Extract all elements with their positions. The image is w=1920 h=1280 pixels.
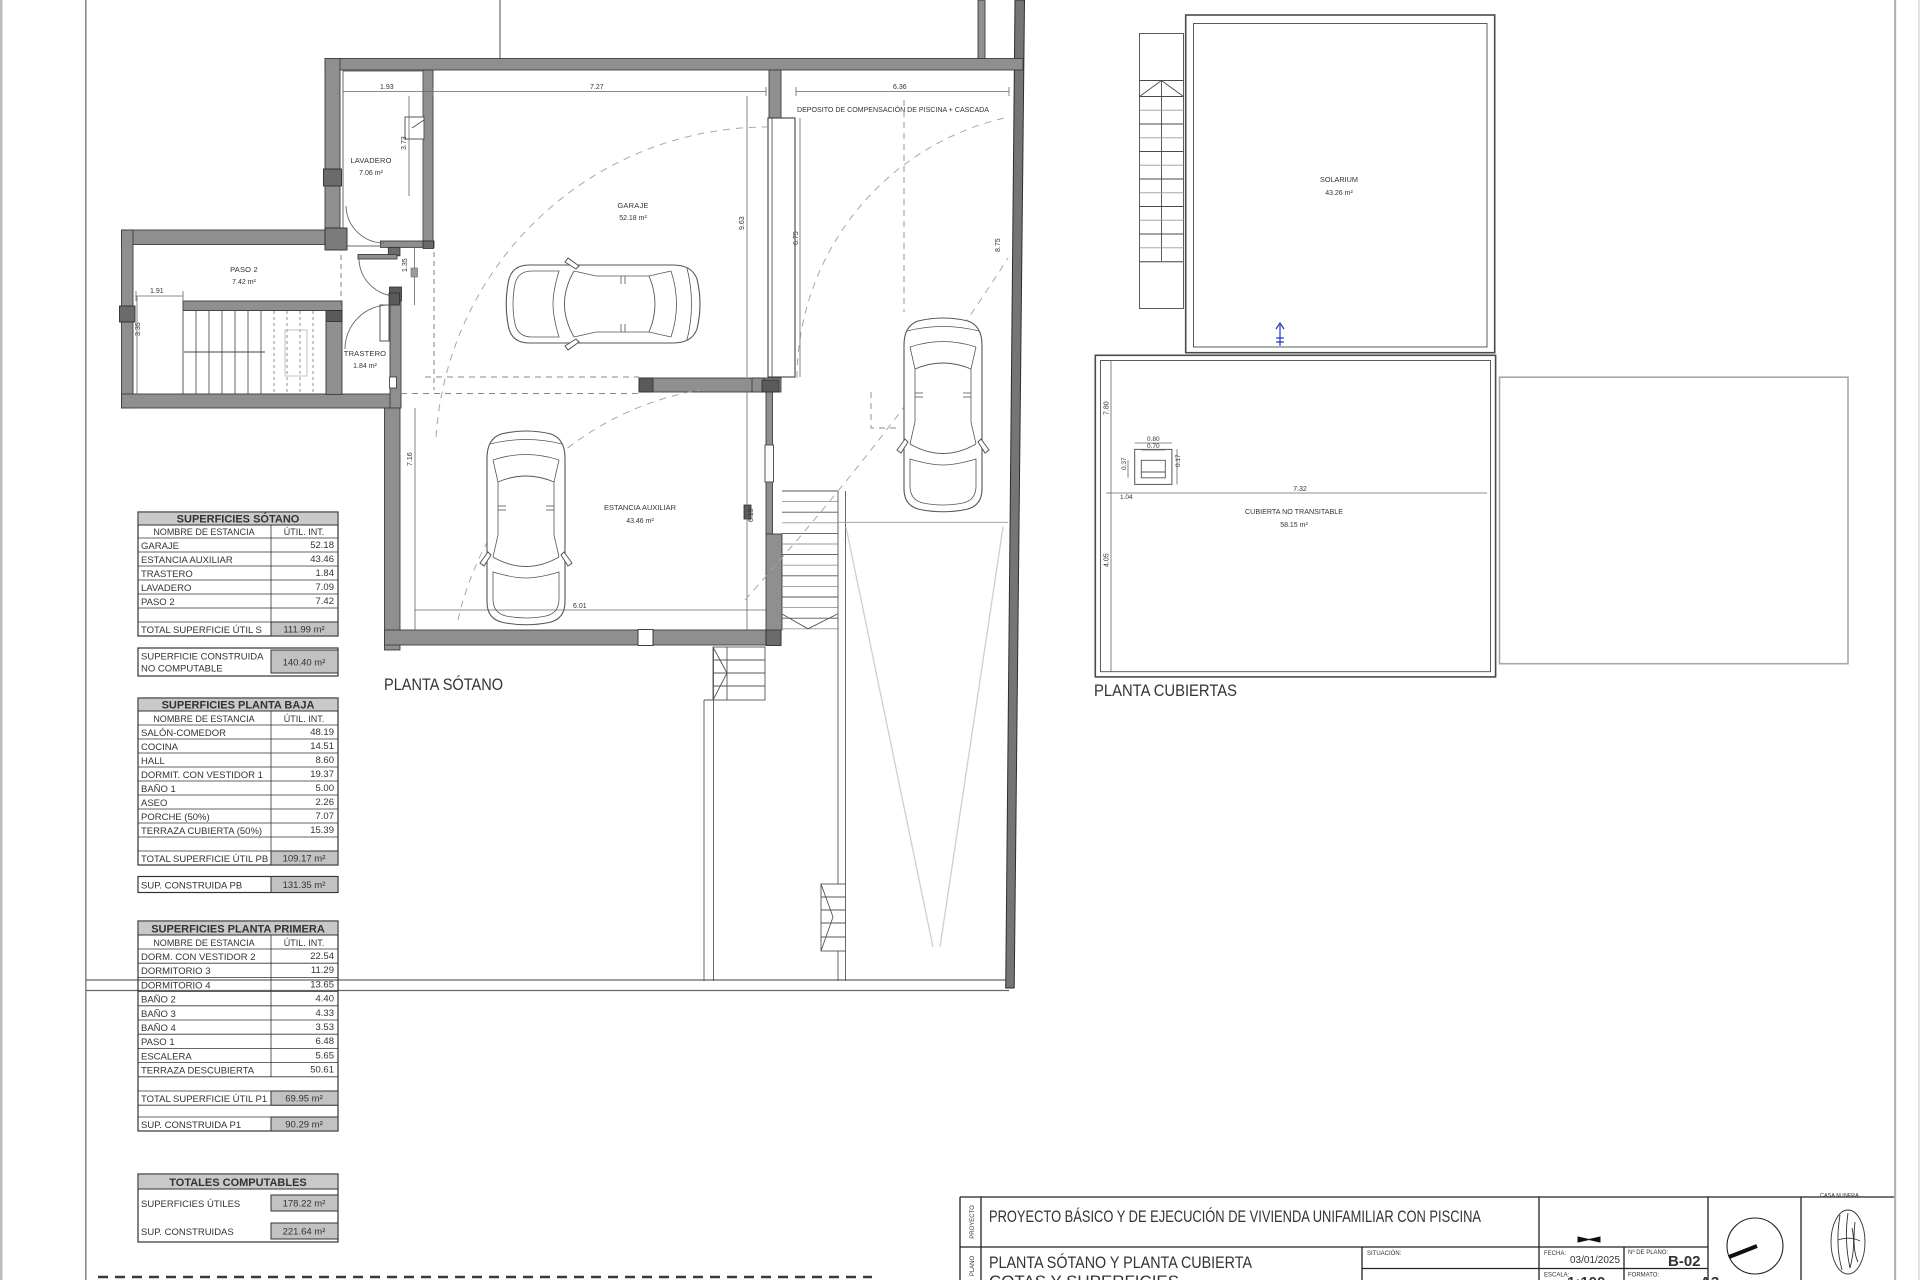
svg-text:4.40: 4.40 [316,994,335,1005]
svg-text:15.39: 15.39 [310,825,334,836]
svg-text:5.65: 5.65 [316,1050,335,1061]
svg-text:1.84: 1.84 [316,568,335,579]
svg-text:COCINA: COCINA [141,742,179,753]
svg-text:43.46: 43.46 [310,554,334,565]
svg-text:1.91: 1.91 [150,288,164,295]
svg-text:69.95 m²: 69.95 m² [285,1094,323,1105]
svg-text:BAÑO 2: BAÑO 2 [141,995,176,1006]
svg-text:03/01/2025: 03/01/2025 [1570,1255,1620,1266]
svg-text:43.26 m²: 43.26 m² [1325,190,1353,197]
svg-text:SUPERFICIES ÚTILES: SUPERFICIES ÚTILES [141,1199,240,1210]
svg-text:TOTAL SUPERFICIE ÚTIL P1: TOTAL SUPERFICIE ÚTIL P1 [141,1094,267,1105]
svg-text:GARAJE: GARAJE [141,541,179,552]
svg-text:ESTANCIA AUXILIAR: ESTANCIA AUXILIAR [141,555,233,566]
svg-text:PASO 2: PASO 2 [230,265,258,274]
svg-text:SUPERFICIES PLANTA BAJA: SUPERFICIES PLANTA BAJA [162,700,315,712]
svg-text:7.16: 7.16 [407,452,414,466]
svg-text:6.48: 6.48 [316,1036,335,1047]
svg-text:TOTALES COMPUTABLES: TOTALES COMPUTABLES [169,1177,307,1189]
svg-text:1.04: 1.04 [1120,494,1133,501]
svg-text:3.53: 3.53 [316,1022,335,1033]
svg-text:111.99 m²: 111.99 m² [283,625,324,636]
svg-text:TERRAZA DESCUBIERTA: TERRAZA DESCUBIERTA [141,1066,255,1077]
svg-text:1.93: 1.93 [380,84,394,91]
svg-text:22.54: 22.54 [310,951,334,962]
svg-text:DORM. CON VESTIDOR 2: DORM. CON VESTIDOR 2 [141,952,256,963]
svg-text:TOTAL SUPERFICIE ÚTIL S: TOTAL SUPERFICIE ÚTIL S [141,625,262,636]
svg-text:DEPOSITO DE COMPENSACIÓN DE PI: DEPOSITO DE COMPENSACIÓN DE PISCINA + CA… [797,105,989,114]
svg-text:SITUACIÓN:: SITUACIÓN: [1367,1250,1402,1257]
svg-text:58.15 m²: 58.15 m² [1280,522,1308,529]
svg-text:178.22 m²: 178.22 m² [283,1199,326,1210]
svg-text:DORMITORIO 3: DORMITORIO 3 [141,966,211,977]
svg-text:0.37: 0.37 [1121,457,1128,470]
svg-text:ASEO: ASEO [141,798,167,809]
svg-text:48.19: 48.19 [310,727,334,738]
svg-text:8.75: 8.75 [995,238,1002,252]
svg-text:0.80: 0.80 [1147,436,1160,443]
svg-text:8.60: 8.60 [316,755,335,766]
svg-text:52.18 m²: 52.18 m² [619,215,647,222]
svg-text:6.01: 6.01 [573,603,587,610]
svg-text:FORMATO:: FORMATO: [1628,1273,1659,1279]
svg-text:7.09: 7.09 [316,582,335,593]
svg-text:140.40 m²: 140.40 m² [283,658,326,669]
svg-text:SALÓN-COMEDOR: SALÓN-COMEDOR [141,728,226,739]
svg-text:LAVADERO: LAVADERO [350,156,391,165]
svg-text:221.64 m²: 221.64 m² [283,1227,326,1238]
svg-text:FECHA:: FECHA: [1544,1251,1566,1257]
svg-text:50.61: 50.61 [310,1065,334,1076]
svg-text:90.29 m²: 90.29 m² [285,1120,323,1131]
svg-text:CASA M INFRA: CASA M INFRA [1820,1193,1859,1199]
svg-text:0.70: 0.70 [1147,443,1160,450]
svg-text:19.37: 19.37 [310,769,334,780]
svg-text:NOMBRE DE ESTANCIA: NOMBRE DE ESTANCIA [153,714,254,724]
svg-text:CUBIERTA NO TRANSITABLE: CUBIERTA NO TRANSITABLE [1245,507,1343,516]
svg-text:NOMBRE DE ESTANCIA: NOMBRE DE ESTANCIA [153,527,254,537]
svg-text:4.05: 4.05 [1104,553,1111,567]
svg-text:ESCALERA: ESCALERA [141,1051,192,1062]
svg-text:HALL: HALL [141,756,165,767]
svg-text:PROYECTO BÁSICO Y DE EJECUCIÓN: PROYECTO BÁSICO Y DE EJECUCIÓN DE VIVIEN… [989,1207,1481,1226]
svg-text:TERRAZA CUBIERTA (50%): TERRAZA CUBIERTA (50%) [141,826,262,837]
svg-text:109.17 m²: 109.17 m² [283,854,326,865]
svg-text:BAÑO 1: BAÑO 1 [141,784,176,795]
svg-text:SUPERFICIE CONSTRUIDA: SUPERFICIE CONSTRUIDA [141,652,264,663]
svg-text:BAÑO 4: BAÑO 4 [141,1023,176,1034]
svg-text:LAVADERO: LAVADERO [141,583,191,594]
svg-text:131.35 m²: 131.35 m² [283,880,326,891]
svg-text:A3: A3 [1700,1274,1719,1280]
svg-text:PASO 1: PASO 1 [141,1037,175,1048]
svg-text:TOTAL SUPERFICIE ÚTIL PB: TOTAL SUPERFICIE ÚTIL PB [141,854,268,865]
svg-text:PLANTA SÓTANO Y PLANTA CUBIERT: PLANTA SÓTANO Y PLANTA CUBIERTA [989,1253,1253,1272]
svg-text:14.51: 14.51 [310,741,334,752]
svg-text:B-02: B-02 [1668,1253,1701,1270]
svg-text:7.27: 7.27 [590,84,604,91]
svg-text:TRASTERO: TRASTERO [344,349,386,358]
svg-text:52.18: 52.18 [310,540,334,551]
svg-text:GARAJE: GARAJE [617,201,648,210]
svg-text:1:100: 1:100 [1567,1274,1605,1280]
svg-text:SUPERFICIES PLANTA PRIMERA: SUPERFICIES PLANTA PRIMERA [151,924,325,936]
svg-text:7.80: 7.80 [1104,401,1111,415]
svg-text:1.35: 1.35 [402,258,409,272]
svg-text:DORMIT. CON VESTIDOR 1: DORMIT. CON VESTIDOR 1 [141,770,263,781]
svg-text:PORCHE (50%): PORCHE (50%) [141,812,210,823]
svg-text:PLANTA SÓTANO: PLANTA SÓTANO [384,675,503,694]
svg-text:ESTANCIA AUXILIAR: ESTANCIA AUXILIAR [604,503,677,512]
svg-text:2.26: 2.26 [316,797,335,808]
svg-text:6.19: 6.19 [748,508,755,522]
svg-text:7.42: 7.42 [316,596,335,607]
svg-text:ÚTIL. INT.: ÚTIL. INT. [284,527,325,537]
svg-text:COTAS Y SUPERFICIES: COTAS Y SUPERFICIES [989,1272,1179,1280]
svg-text:7.07: 7.07 [316,811,335,822]
svg-text:6.36: 6.36 [893,84,907,91]
svg-text:PROYECTO: PROYECTO [970,1205,976,1239]
svg-text:3.73: 3.73 [401,136,408,150]
svg-text:13.65: 13.65 [310,979,334,990]
svg-text:SUP. CONSTRUIDA PB: SUP. CONSTRUIDA PB [141,881,242,892]
svg-text:43.46 m²: 43.46 m² [626,518,654,525]
svg-text:1.84 m²: 1.84 m² [353,363,377,370]
svg-text:NO COMPUTABLE: NO COMPUTABLE [141,664,223,675]
svg-text:5.00: 5.00 [316,783,335,794]
svg-text:SUP. CONSTRUIDA P1: SUP. CONSTRUIDA P1 [141,1120,241,1131]
svg-text:SUP. CONSTRUIDAS: SUP. CONSTRUIDAS [141,1227,234,1238]
svg-text:7.42 m²: 7.42 m² [232,279,256,286]
svg-text:ÚTIL. INT.: ÚTIL. INT. [284,714,325,724]
svg-text:7.32: 7.32 [1293,486,1307,493]
svg-text:7.06 m²: 7.06 m² [359,170,383,177]
svg-text:PLANO: PLANO [970,1255,976,1276]
svg-text:6.75: 6.75 [793,231,800,245]
svg-text:9.63: 9.63 [739,216,746,230]
svg-text:BAÑO 3: BAÑO 3 [141,1009,176,1020]
svg-text:DORMITORIO 4: DORMITORIO 4 [141,980,211,991]
svg-text:PLANTA CUBIERTAS: PLANTA CUBIERTAS [1094,681,1237,700]
svg-text:SUPERFICIES SÓTANO: SUPERFICIES SÓTANO [177,513,300,526]
svg-text:4.33: 4.33 [316,1008,335,1019]
svg-text:TRASTERO: TRASTERO [141,569,193,580]
svg-text:ÚTIL. INT.: ÚTIL. INT. [284,938,325,948]
svg-text:Nº DE PLANO:: Nº DE PLANO: [1628,1249,1669,1256]
svg-text:PASO 2: PASO 2 [141,597,175,608]
svg-text:3.35: 3.35 [135,322,142,336]
svg-text:ESCALA:: ESCALA: [1544,1273,1570,1279]
svg-text:11.29: 11.29 [311,965,334,976]
svg-text:NOMBRE DE ESTANCIA: NOMBRE DE ESTANCIA [153,938,254,948]
svg-text:0.17: 0.17 [1175,454,1182,467]
svg-text:SOLARIUM: SOLARIUM [1320,175,1358,184]
